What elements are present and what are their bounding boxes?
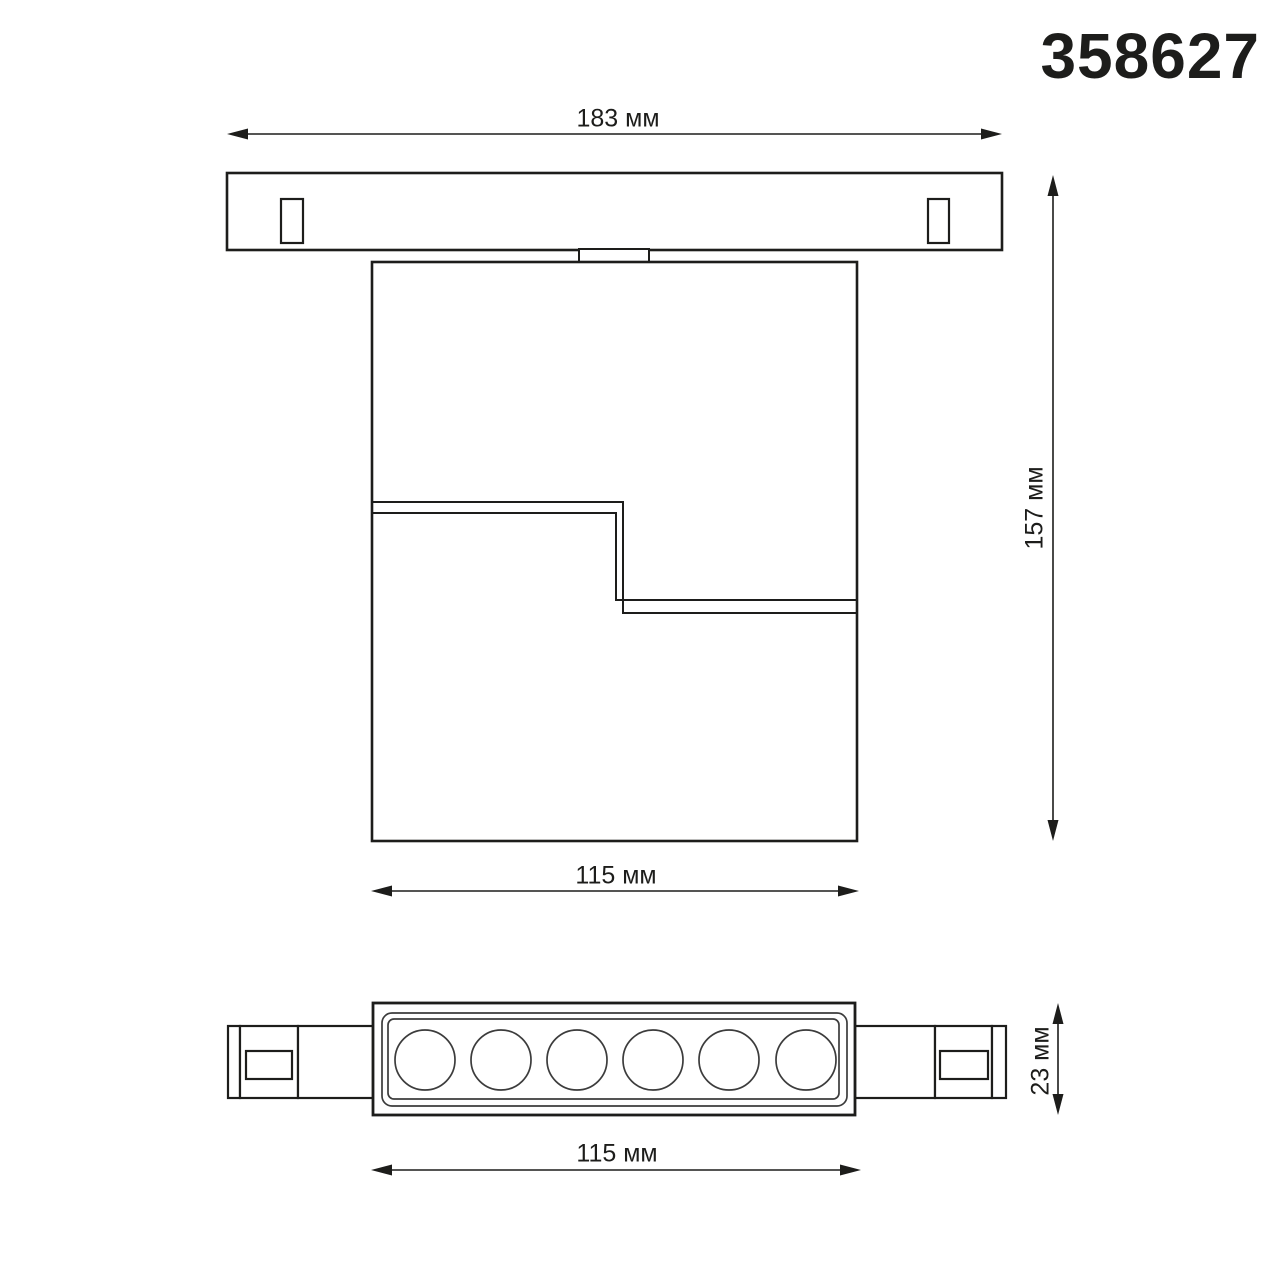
dimension-overall-height [1048, 175, 1059, 841]
dim-label-body-depth: 23 мм [1029, 1026, 1054, 1095]
dim-arrow-up-icon [1048, 175, 1059, 196]
dim-label-track-width: 183 мм [576, 107, 659, 132]
dim-arrow-down-icon [1048, 820, 1059, 841]
dim-arrow-down-icon [1053, 1094, 1064, 1115]
track-outline [227, 173, 1002, 250]
dim-label-body-width-front: 115 мм [575, 864, 656, 889]
left-link-bar [298, 1026, 373, 1098]
dim-arrow-left-icon [371, 1165, 392, 1176]
right-link-bar [855, 1026, 935, 1098]
front-view [227, 173, 1002, 841]
dim-arrow-left-icon [371, 886, 392, 897]
drawing-canvas [0, 0, 1280, 1280]
dim-arrow-right-icon [838, 886, 859, 897]
dim-arrow-right-icon [840, 1165, 861, 1176]
lamp-body-outline [372, 262, 857, 841]
left-contact-window [246, 1051, 292, 1079]
dim-arrow-right-icon [981, 129, 1002, 140]
dim-label-body-width-bottom: 115 мм [576, 1142, 657, 1167]
product-code: 358627 [1040, 24, 1260, 88]
bottom-view [228, 1003, 1006, 1115]
dim-arrow-left-icon [227, 129, 248, 140]
dim-arrow-up-icon [1053, 1003, 1064, 1024]
right-end-strip [992, 1026, 1006, 1098]
dim-label-overall-height: 157 мм [1023, 466, 1048, 549]
technical-drawing-page: 358627 183 мм 157 мм 115 мм 23 мм 115 мм [0, 0, 1280, 1280]
left-end-strip [228, 1026, 240, 1098]
right-contact-window [940, 1051, 988, 1079]
